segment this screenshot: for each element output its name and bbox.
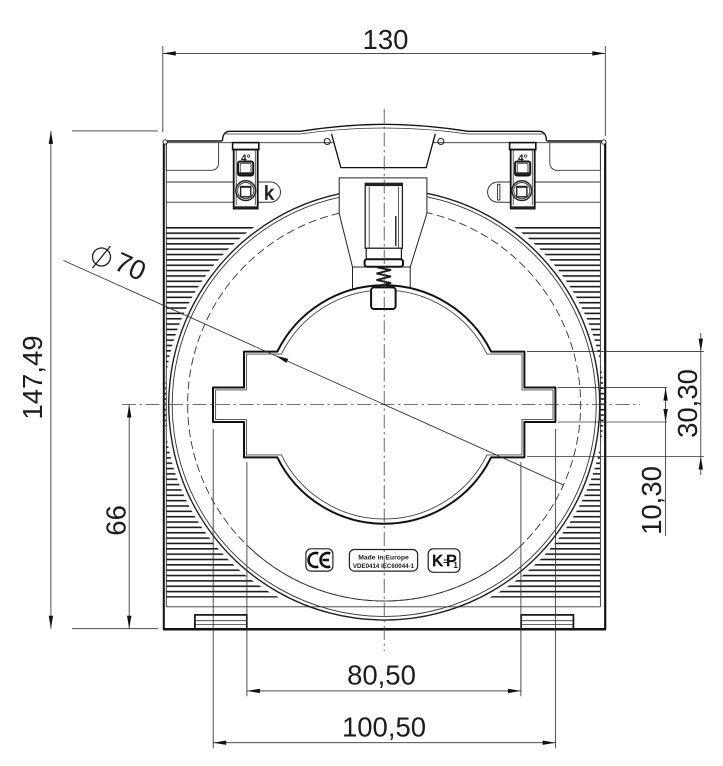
svg-text:130: 130 (363, 24, 409, 55)
svg-text:VDE0414 IEC60044-1: VDE0414 IEC60044-1 (353, 563, 415, 570)
svg-text:10,30: 10,30 (636, 466, 667, 535)
svg-text:K: K (432, 553, 443, 570)
svg-text:k: k (264, 184, 274, 205)
svg-text:30,30: 30,30 (672, 369, 703, 438)
svg-text:100,50: 100,50 (342, 712, 426, 743)
svg-text:66: 66 (100, 505, 131, 536)
svg-text:80,50: 80,50 (347, 659, 416, 690)
svg-text:147,49: 147,49 (17, 335, 48, 419)
svg-text:Made in Europe: Made in Europe (358, 555, 409, 562)
svg-text:1: 1 (453, 560, 458, 570)
